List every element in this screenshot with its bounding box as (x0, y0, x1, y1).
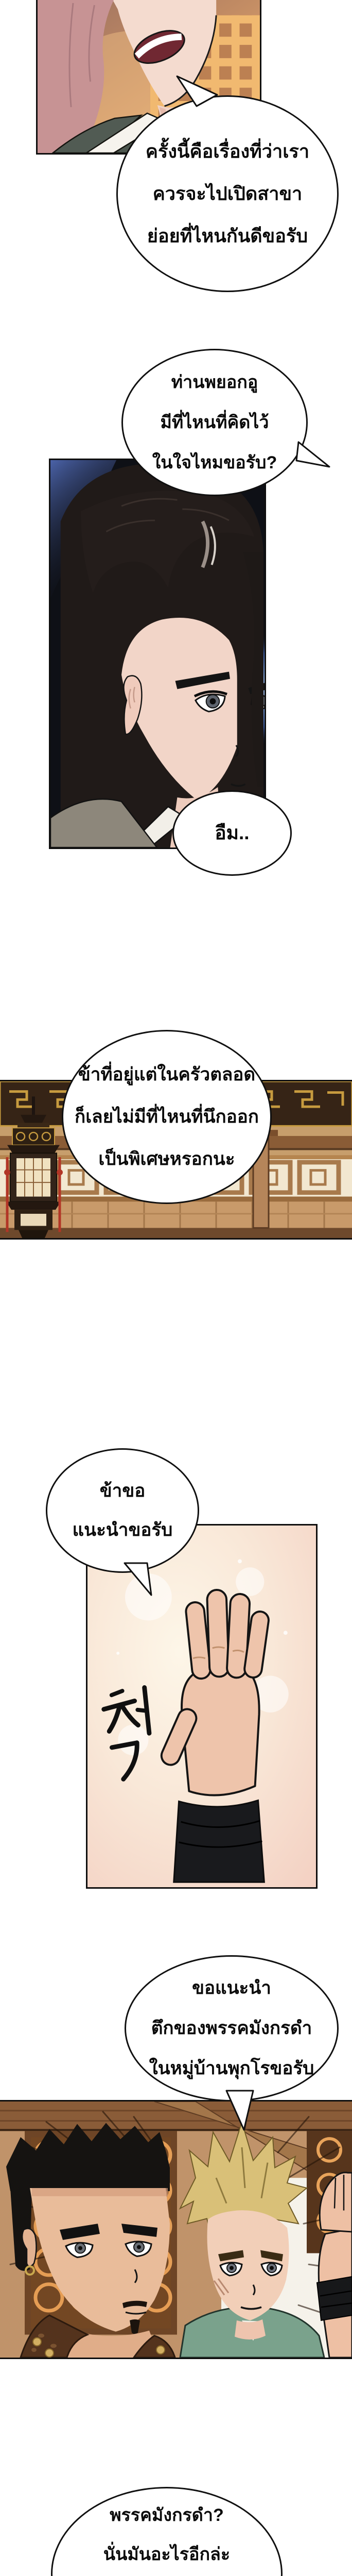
neck (235, 2319, 266, 2340)
speech-line: มีที่ไหนที่คิดไว้ (160, 402, 269, 443)
panel-man-art (50, 460, 265, 848)
black-wrist-wrap (174, 1800, 265, 1882)
speech-bubble-ask-pyeoku: ท่านพยอกอู มีที่ไหนที่คิดไว้ ในใจไหมขอรั… (121, 349, 308, 496)
speech-line: ข้าขอ (100, 1471, 146, 1511)
black-wrist-wrap (317, 2277, 352, 2320)
bubble-tail (293, 437, 333, 471)
speech-line: ขอแนะนำ (192, 1968, 271, 2008)
bubble-tail (170, 71, 221, 108)
comic-page: ครั้งนี้คือเรื่องที่ว่าเรา ควรจะไปเปิดสา… (0, 0, 352, 2576)
speech-bubble-branch-question: ครั้งนี้คือเรื่องที่ว่าเรา ควรจะไปเปิดสา… (116, 95, 339, 292)
speech-line: ตึกของพรรคมังกรดำ (151, 2008, 312, 2048)
panel-two-men-reacting (0, 2100, 352, 2359)
speech-line: ในหมู่บ้านพุกโรขอรับ (149, 2048, 314, 2089)
speech-bubble-black-dragon-question: พรรคมังกรดำ? นั่นมันอะไรอีกล่ะ ก่อนหน้าน… (51, 2487, 283, 2576)
speech-line: ควรจะไปเปิดสาขา (153, 173, 303, 215)
speech-line: ท่านพยอกอู (171, 362, 258, 402)
speech-line: ก็เลยไม่มีที่ไหนที่นึกออก (75, 1096, 259, 1138)
speech-bubble-hmm: อืม.. (172, 790, 292, 876)
speech-line: ย่อยที่ไหนกันดีขอรับ (147, 215, 308, 257)
gold-stud (45, 2349, 54, 2357)
speech-bubble-recommend: ข้าขอ แนะนำขอรับ (46, 1448, 199, 1573)
speech-line: ในใจไหมขอรับ? (152, 443, 277, 483)
speech-line: พรรคมังกรดำ? (110, 2496, 223, 2535)
speech-bubble-black-dragon-building: ขอแนะนำ ตึกของพรรคมังกรดำ ในหมู่บ้านพุกโ… (125, 1955, 339, 2102)
speech-line: แนะนำขอรับ (73, 1511, 173, 1550)
bubble-tail (117, 1559, 161, 1599)
speech-line: อืม.. (215, 822, 249, 844)
bubble-tail (220, 2087, 258, 2134)
speech-line: เป็นพิเศษหรอกนะ (98, 1138, 235, 1180)
gold-stud (156, 2346, 165, 2354)
gold-stud (33, 2337, 41, 2346)
speech-line: ครั้งนี้คือเรื่องที่ว่าเรา (146, 130, 309, 173)
speech-line: นั่นมันอะไรอีกล่ะ (103, 2535, 230, 2574)
speech-bubble-kitchen-explanation: ข้าที่อยู่แต่ในครัวตลอด ก็เลยไม่มีที่ไหน… (62, 1030, 272, 1204)
panel-reaction-art (0, 2102, 352, 2358)
speech-line: ข้าที่อยู่แต่ในครัวตลอด (78, 1054, 255, 1096)
palm (182, 1669, 259, 1795)
speech-line: ก่อนหน้านี้ที่ข้าพังไปคือ (80, 2574, 254, 2576)
